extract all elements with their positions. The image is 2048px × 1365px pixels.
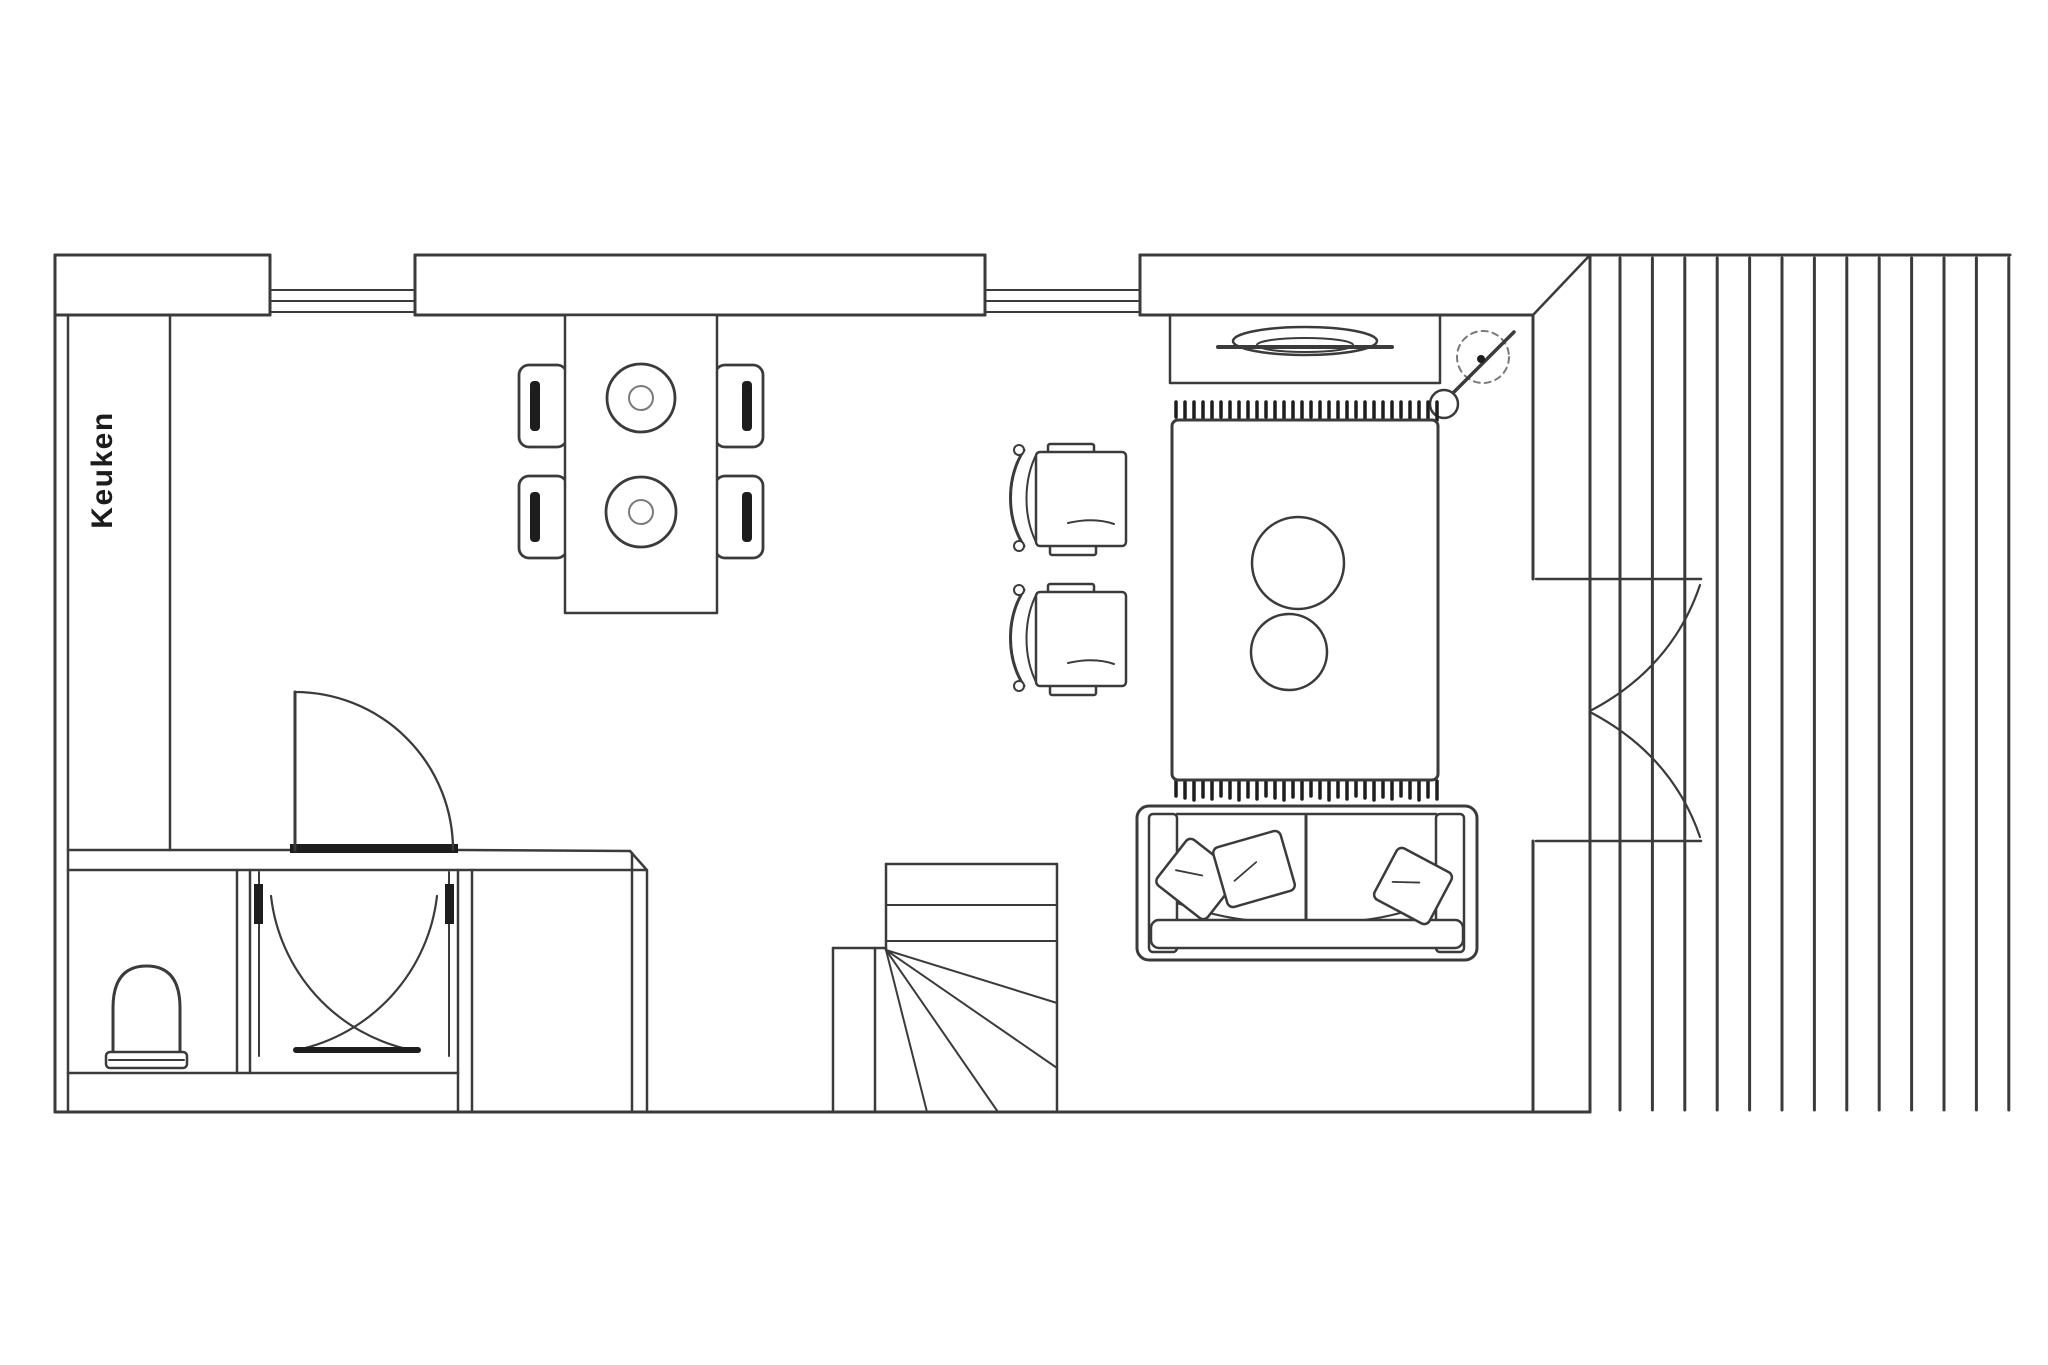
dining-chair-back: [530, 381, 540, 431]
lamp-cord: [1450, 332, 1514, 396]
layer-sideboard: [1170, 315, 1440, 383]
swingdoor-arc-left: [297, 896, 437, 1050]
terrace-planks: [1620, 258, 2009, 1110]
dining-table: [565, 315, 717, 613]
layer-windows: [270, 290, 1140, 312]
layer-terrace: [1590, 255, 2010, 1110]
dining-chair-seat: [519, 365, 567, 447]
stair-winder-1: [886, 950, 1057, 1003]
layer-toilet: [106, 966, 187, 1068]
armchair-knob: [1014, 585, 1024, 595]
kitchen-door-threshold: [290, 844, 458, 853]
swingdoor-arc-right: [271, 896, 411, 1050]
layer-rug: [1172, 402, 1438, 800]
layer-kitchen-door: [295, 692, 453, 850]
layer-stairs: [886, 864, 1057, 1112]
dining-chair-seat: [715, 365, 763, 447]
layer-sofa: [1137, 806, 1477, 960]
dining-chair-seat: [715, 476, 763, 558]
corner-miter-topright: [1533, 255, 1590, 315]
stair-winder-3: [886, 950, 998, 1112]
lamp-center-dot: [1477, 355, 1485, 363]
armchair-seat: [1036, 452, 1126, 546]
sofa-front-edge: [1151, 920, 1463, 948]
dining-chair-back: [742, 492, 752, 542]
armchair-back-outer: [1011, 450, 1025, 546]
swingdoor-hinge-right: [445, 884, 454, 924]
toilet-bowl: [113, 966, 180, 1056]
floor-plan: Keuken: [0, 0, 2048, 1365]
layer-armchairs: [1011, 444, 1127, 695]
armchair-knob: [1014, 445, 1024, 455]
dining-chair-seat: [519, 476, 567, 558]
rug-fringe-top: [1176, 402, 1437, 421]
rug-fringe-bottom: [1176, 781, 1437, 800]
kitchen-door-swing-arc: [295, 692, 453, 850]
rug-body: [1172, 420, 1438, 780]
layer-dining-set: [519, 315, 763, 613]
armchair-knob: [1014, 681, 1024, 691]
dining-chair-back: [530, 492, 540, 542]
swingdoor-hinge-left: [254, 884, 263, 924]
floor-plan-canvas: Keuken: [0, 0, 2048, 1365]
kitchen-label: Keuken: [86, 411, 119, 528]
hall-wall-top-right: [458, 850, 630, 851]
layer-kitchen: Keuken: [86, 315, 170, 850]
bowl-outer: [1233, 327, 1377, 355]
dining-chair-back: [742, 381, 752, 431]
layer-pendant-lamp: [1430, 331, 1514, 418]
layer-swing-doors: [254, 872, 454, 1056]
armchair-seat: [1036, 592, 1126, 686]
lamp-bulb: [1430, 390, 1458, 418]
armchair-knob: [1014, 541, 1024, 551]
armchair-back-outer: [1011, 590, 1025, 686]
